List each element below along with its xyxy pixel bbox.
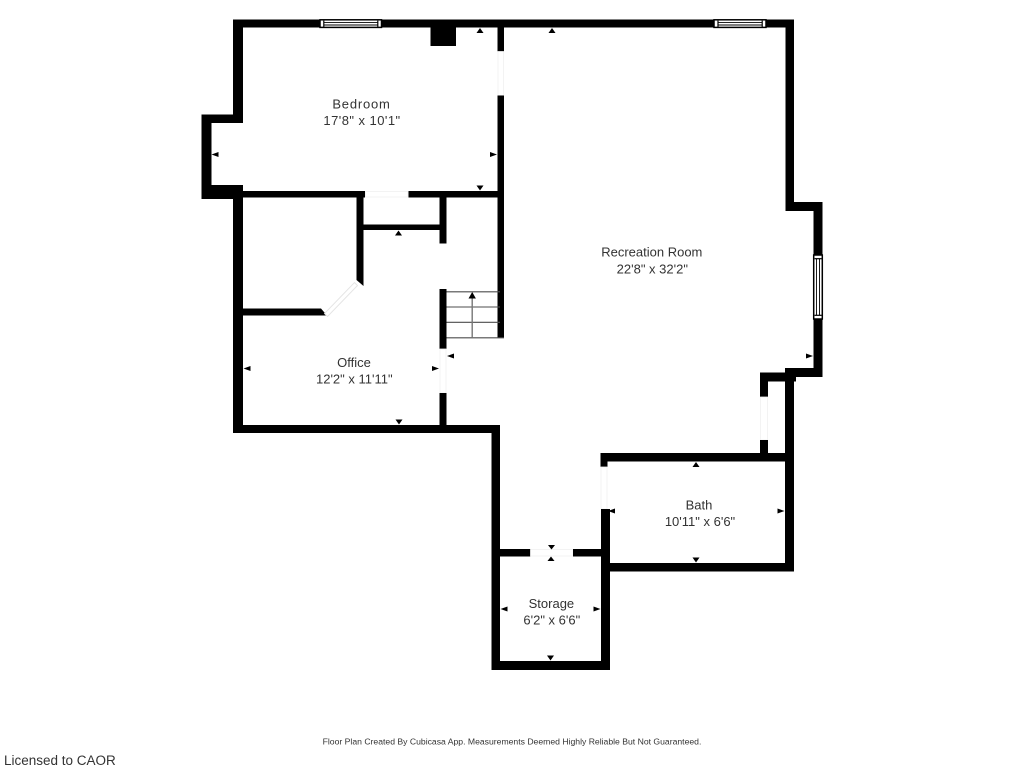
svg-text:22'8" x 32'2": 22'8" x 32'2" bbox=[617, 261, 689, 276]
svg-text:Floor Plan Created By Cubicasa: Floor Plan Created By Cubicasa App. Meas… bbox=[323, 737, 702, 747]
svg-text:6'2" x 6'6": 6'2" x 6'6" bbox=[523, 612, 580, 627]
svg-text:10'11" x 6'6": 10'11" x 6'6" bbox=[665, 514, 736, 529]
svg-text:Recreation Room: Recreation Room bbox=[601, 245, 702, 260]
svg-text:Licensed to CAOR: Licensed to CAOR bbox=[4, 753, 116, 768]
svg-text:12'2" x 11'11": 12'2" x 11'11" bbox=[316, 372, 393, 387]
svg-text:17'8" x 10'1": 17'8" x 10'1" bbox=[323, 113, 400, 128]
svg-text:Bedroom: Bedroom bbox=[332, 96, 390, 111]
svg-text:Storage: Storage bbox=[529, 596, 575, 611]
svg-text:Office: Office bbox=[337, 355, 371, 370]
svg-text:Bath: Bath bbox=[686, 497, 713, 512]
